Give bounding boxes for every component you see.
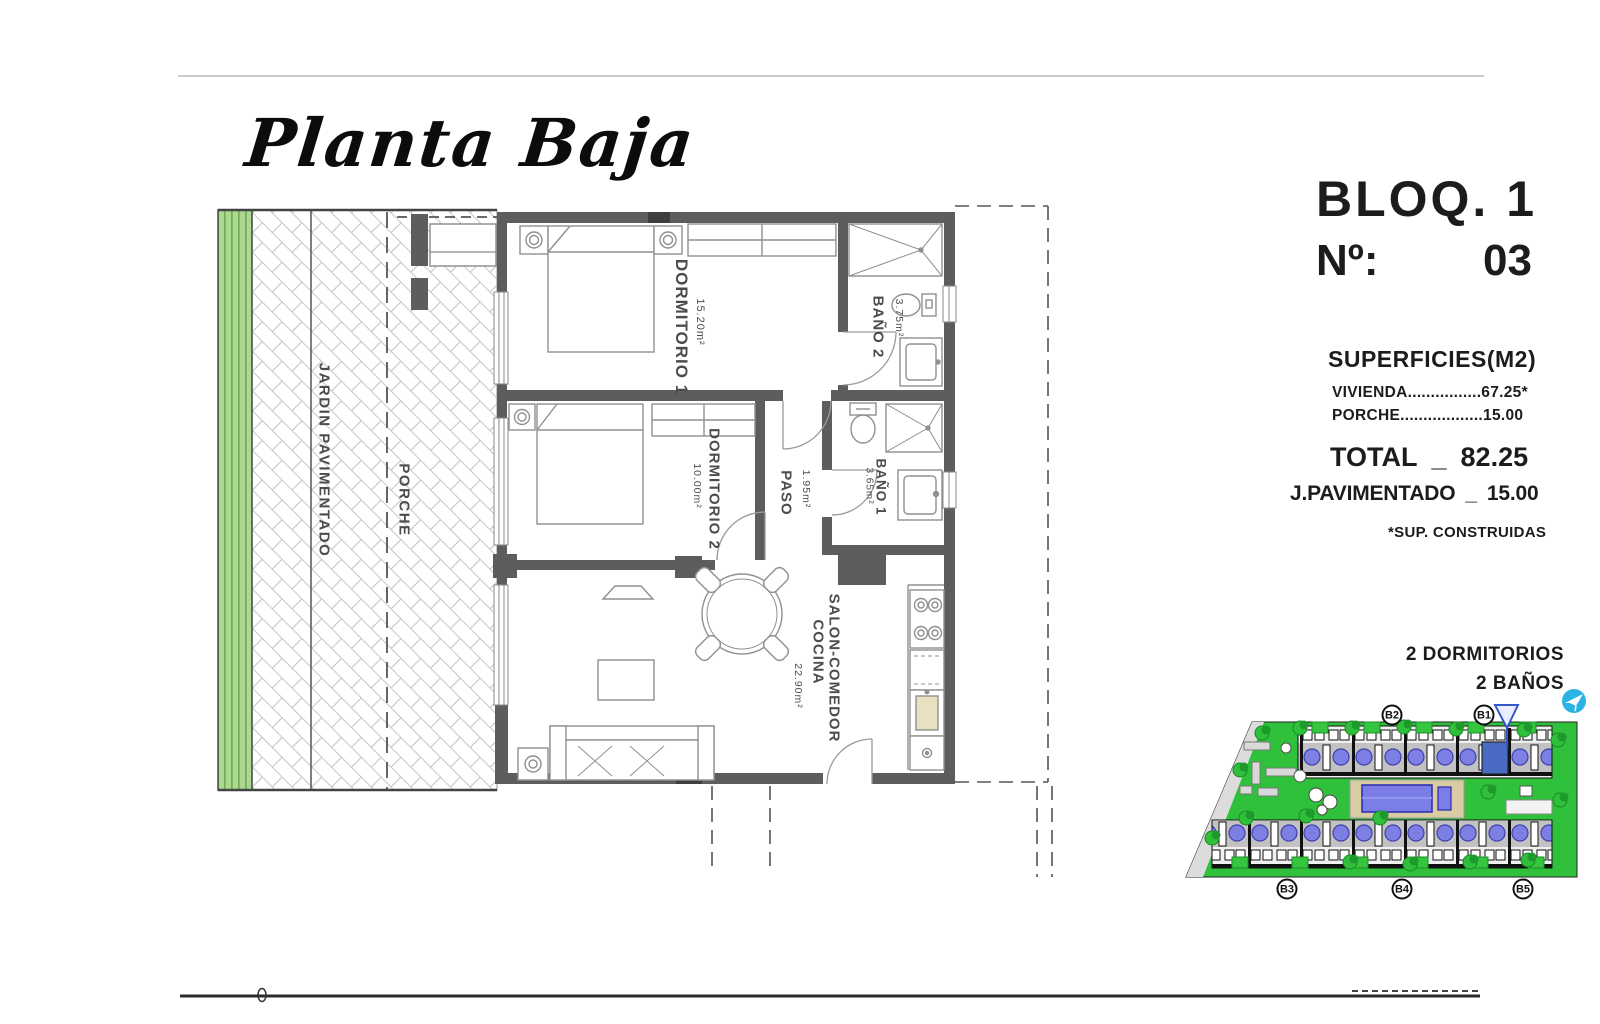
unit-number-value: 03 xyxy=(1483,236,1532,286)
site-badge-b3: B3 xyxy=(1277,879,1298,900)
room-label-dormitorio-2: DORMITORIO 2 xyxy=(706,428,723,550)
total-label: TOTAL xyxy=(1330,442,1418,472)
label-jardin-pavimentado: JARDIN PAVIMENTADO xyxy=(316,363,333,558)
label-porche: PORCHE xyxy=(396,463,413,536)
total-row: TOTAL_82.25 xyxy=(1330,442,1528,473)
site-badge-b2: B2 xyxy=(1382,705,1403,726)
room-area-dormitorio-2: 10.00m² xyxy=(691,463,703,509)
room-area-bano-2: 3.75m² xyxy=(893,299,905,338)
paper-plane-logo-icon xyxy=(1562,689,1586,713)
room-area-bano-1: 3.65m² xyxy=(864,467,875,504)
total-separator: _ xyxy=(1432,442,1447,472)
superficies-title: SUPERFICIES(M2) xyxy=(1328,346,1536,373)
room-label-cocina: COCINA xyxy=(810,619,827,684)
feature-baths: 2 BAÑOS xyxy=(1406,669,1564,698)
jpavimentado-row: J.PAVIMENTADO_15.00 xyxy=(1290,482,1538,506)
site-badge-b1: B1 xyxy=(1474,705,1495,726)
features-block: 2 DORMITORIOS 2 BAÑOS xyxy=(1406,640,1564,698)
total-value: 82.25 xyxy=(1461,442,1529,472)
garden-and-porch xyxy=(218,210,497,790)
jpav-value: 15.00 xyxy=(1487,482,1539,505)
unit-number-row: Nº: 03 xyxy=(1316,236,1532,286)
jpav-label: J.PAVIMENTADO xyxy=(1290,482,1455,505)
floorplan-sheet: Planta Baja JARDIN PAVIMENTADO PORCHE DO… xyxy=(0,0,1600,1024)
room-label-bano-1: BAÑO 1 xyxy=(874,458,889,515)
plan-linework xyxy=(0,0,1600,1024)
highlighted-unit xyxy=(1482,742,1508,774)
jpav-separator: _ xyxy=(1465,482,1476,505)
sheet-title: Planta Baja xyxy=(242,104,699,182)
block-title: BLOQ. 1 xyxy=(1316,170,1536,228)
vivienda-row: VIVIENDA................67.25* xyxy=(1332,384,1528,402)
unit-number-label: Nº: xyxy=(1316,236,1379,286)
room-area-cocina: 22.90m² xyxy=(792,663,804,709)
room-label-salon-comedor: SALON-COMEDOR xyxy=(826,594,843,743)
room-label-bano-2: BAÑO 2 xyxy=(870,296,887,359)
room-label-dormitorio-1: DORMITORIO 1 xyxy=(671,259,691,395)
room-label-paso: PASO xyxy=(778,470,795,515)
room-area-dormitorio-1: 15.20m² xyxy=(694,298,706,345)
porche-row: PORCHE..................15.00 xyxy=(1332,407,1523,425)
room-area-paso: 1.95m² xyxy=(800,470,812,509)
footnote: *SUP. CONSTRUIDAS xyxy=(1388,524,1546,541)
site-badge-b4: B4 xyxy=(1392,879,1413,900)
feature-bedrooms: 2 DORMITORIOS xyxy=(1406,640,1564,669)
site-badge-b5: B5 xyxy=(1513,879,1534,900)
